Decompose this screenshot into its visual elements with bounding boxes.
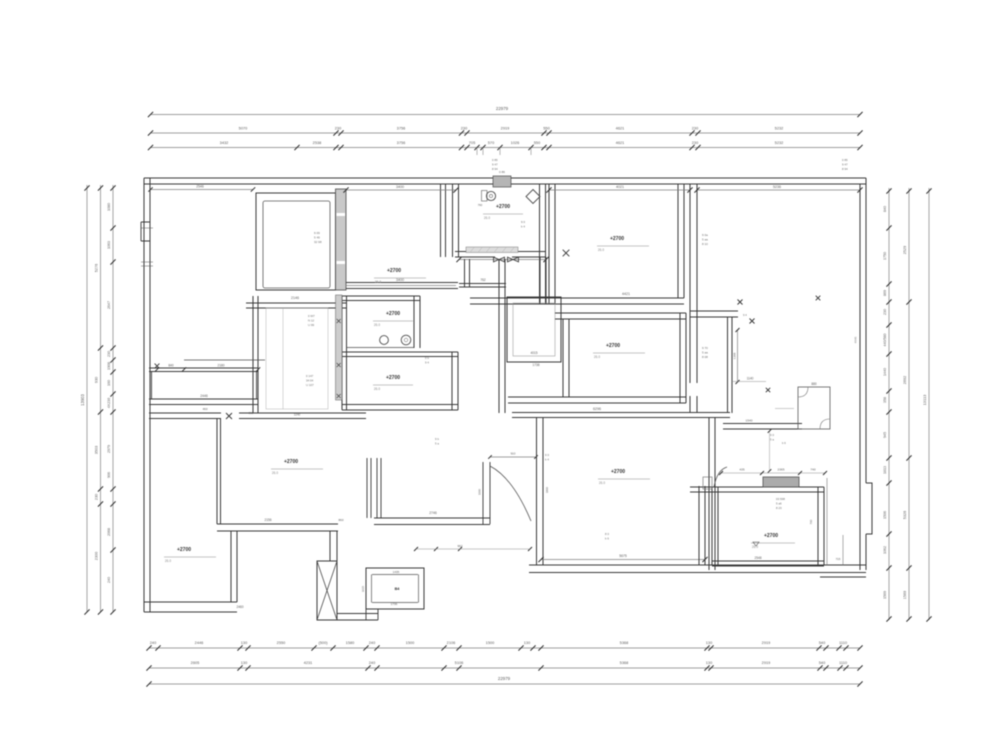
svg-text:840: 840	[883, 206, 887, 212]
svg-text:2546: 2546	[196, 185, 204, 189]
svg-text:130: 130	[524, 640, 531, 645]
svg-text:+2700: +2700	[177, 547, 191, 553]
svg-text:1062: 1062	[883, 546, 887, 554]
svg-text:9 0: 9 0	[770, 433, 774, 437]
svg-text:0 86: 0 86	[499, 170, 505, 174]
svg-text:3756: 3756	[397, 140, 406, 145]
svg-text:5 a: 5 a	[770, 438, 774, 442]
svg-text:570: 570	[488, 140, 495, 145]
svg-text:2529: 2529	[903, 246, 907, 254]
svg-text:740: 740	[810, 468, 815, 472]
svg-text:4421: 4421	[622, 292, 630, 296]
svg-text:+2700: +2700	[386, 375, 400, 381]
svg-text:2460: 2460	[236, 605, 243, 609]
svg-text:+2700: +2700	[387, 268, 401, 274]
svg-text:9 4: 9 4	[743, 313, 747, 317]
svg-text:906: 906	[107, 472, 111, 478]
svg-text:230: 230	[692, 140, 699, 145]
svg-text:460: 460	[202, 407, 207, 411]
svg-text:+2700: +2700	[496, 204, 510, 210]
svg-text:1738: 1738	[532, 363, 539, 367]
svg-text:8 94: 8 94	[492, 167, 498, 171]
svg-text:910: 910	[511, 452, 516, 456]
svg-text:4621: 4621	[616, 126, 625, 131]
svg-text:440/580: 440/580	[883, 334, 887, 347]
svg-text:230: 230	[692, 126, 699, 131]
svg-text:1750: 1750	[883, 252, 887, 260]
svg-text:13903: 13903	[80, 394, 85, 406]
svg-text:1500: 1500	[406, 640, 415, 645]
svg-text:230: 230	[461, 126, 468, 131]
svg-text:+2700: +2700	[764, 533, 778, 539]
svg-text:5232: 5232	[775, 140, 784, 145]
svg-text:435: 435	[739, 468, 744, 472]
svg-text:230: 230	[95, 494, 99, 500]
svg-text:5368: 5368	[620, 640, 629, 645]
svg-text:550: 550	[543, 126, 550, 131]
svg-text:540: 540	[819, 660, 826, 665]
svg-text:8 0: 8 0	[605, 532, 609, 536]
svg-text:+2700: +2700	[611, 469, 625, 475]
svg-text:+2700: +2700	[284, 459, 298, 465]
svg-text:880: 880	[811, 382, 817, 386]
svg-text:240: 240	[107, 577, 111, 583]
svg-text:6296: 6296	[593, 407, 601, 411]
svg-text:1500: 1500	[486, 640, 495, 645]
svg-text:860: 860	[338, 518, 343, 522]
svg-text:8 94: 8 94	[842, 167, 848, 171]
svg-text:9 47: 9 47	[842, 163, 848, 167]
svg-text:8 23: 8 23	[776, 506, 782, 510]
svg-text:2550: 2550	[277, 640, 286, 645]
svg-text:715: 715	[836, 557, 841, 561]
svg-text:32 98: 32 98	[314, 240, 322, 244]
svg-text:1736: 1736	[391, 602, 398, 606]
svg-text:869: 869	[883, 290, 887, 296]
svg-text:03 598: 03 598	[776, 497, 785, 501]
svg-text:945: 945	[883, 432, 887, 438]
svg-text:358: 358	[883, 397, 887, 403]
svg-text:1908: 1908	[107, 362, 111, 370]
svg-text:230: 230	[335, 126, 342, 131]
svg-text:b 6: b 6	[782, 441, 786, 445]
svg-text:U 99: U 99	[308, 323, 314, 327]
svg-text:4X230: 4X230	[107, 398, 111, 408]
svg-text:2647: 2647	[107, 301, 111, 309]
svg-text:550: 550	[534, 140, 541, 145]
svg-text:2300: 2300	[95, 552, 99, 560]
svg-text:26.0: 26.0	[752, 545, 758, 549]
svg-text:5 49: 5 49	[314, 236, 320, 240]
svg-text:760: 760	[809, 519, 813, 524]
svg-text:9 0: 9 0	[521, 220, 525, 224]
svg-text:705: 705	[469, 140, 476, 145]
svg-text:1063: 1063	[107, 241, 111, 249]
svg-text:5326: 5326	[903, 511, 907, 519]
svg-text:240: 240	[369, 660, 376, 665]
svg-text:160: 160	[107, 380, 111, 386]
svg-text:3400: 3400	[396, 185, 404, 189]
svg-text:3756: 3756	[397, 126, 406, 131]
svg-text:840: 840	[168, 364, 174, 368]
svg-text:5 a6: 5 a6	[776, 502, 782, 506]
svg-text:130: 130	[706, 640, 713, 645]
svg-text:2919: 2919	[762, 660, 771, 665]
svg-text:9 47: 9 47	[492, 163, 498, 167]
svg-text:5276: 5276	[95, 264, 99, 272]
svg-text:1110: 1110	[839, 660, 848, 665]
svg-text:2746: 2746	[429, 511, 437, 515]
svg-text:540: 540	[819, 640, 826, 645]
svg-text:1140: 1140	[747, 377, 754, 381]
svg-text:1569: 1569	[903, 591, 907, 599]
svg-text:2180: 2180	[217, 364, 224, 368]
svg-text:26.0: 26.0	[598, 248, 604, 252]
svg-text:4646: 4646	[854, 336, 858, 343]
svg-text:1860: 1860	[545, 486, 549, 493]
svg-text:0 W7: 0 W7	[308, 314, 315, 318]
svg-text:2919: 2919	[762, 640, 771, 645]
svg-text:N 12: N 12	[308, 319, 314, 323]
svg-text:1110: 1110	[839, 640, 848, 645]
svg-text:2548: 2548	[754, 556, 761, 560]
svg-text:1080: 1080	[107, 203, 111, 211]
svg-text:b 6: b 6	[605, 537, 609, 541]
svg-text:1615: 1615	[361, 585, 365, 592]
svg-text:8 08: 8 08	[702, 355, 708, 359]
svg-text:8 10: 8 10	[702, 242, 708, 246]
svg-text:34 04: 34 04	[306, 379, 314, 383]
svg-text:b 4: b 4	[521, 225, 525, 229]
svg-text:760: 760	[478, 203, 483, 207]
svg-text:3400: 3400	[396, 278, 404, 282]
svg-text:240: 240	[150, 640, 157, 645]
svg-text:2538: 2538	[313, 140, 322, 145]
svg-text:2106: 2106	[447, 640, 456, 645]
svg-text:26.0: 26.0	[165, 559, 171, 563]
svg-text:930: 930	[95, 377, 99, 383]
svg-text:230: 230	[883, 309, 887, 315]
svg-text:2365: 2365	[778, 468, 785, 472]
svg-text:26.0: 26.0	[599, 481, 605, 485]
svg-text:9 b: 9 b	[435, 437, 439, 441]
svg-text:2979: 2979	[107, 445, 111, 453]
svg-text:(500): (500)	[318, 640, 328, 645]
svg-text:4231: 4231	[304, 660, 313, 665]
svg-text:5106: 5106	[455, 660, 464, 665]
svg-text:5232: 5232	[775, 126, 784, 131]
svg-text:1540: 1540	[746, 419, 753, 423]
svg-text:2446: 2446	[195, 640, 204, 645]
svg-text:1813: 1813	[883, 466, 887, 474]
svg-text:9 0: 9 0	[545, 453, 549, 457]
svg-text:1026: 1026	[511, 140, 520, 145]
svg-text:9 09: 9 09	[314, 231, 320, 235]
svg-text:2919: 2919	[501, 126, 510, 131]
svg-text:1440: 1440	[883, 368, 887, 376]
svg-text:26.0: 26.0	[594, 355, 600, 359]
svg-text:2692: 2692	[903, 376, 907, 384]
svg-text:4021: 4021	[616, 185, 624, 189]
svg-text:860: 860	[249, 411, 254, 415]
svg-text:0 85: 0 85	[842, 158, 848, 162]
svg-text:22979: 22979	[496, 106, 509, 111]
svg-text:5368: 5368	[620, 660, 629, 665]
svg-text:1506: 1506	[883, 511, 887, 519]
svg-text:+2700: +2700	[606, 343, 620, 349]
svg-text:+2700: +2700	[386, 311, 400, 317]
svg-text:9 0a: 9 0a	[702, 233, 708, 237]
svg-text:130: 130	[241, 660, 248, 665]
svg-text:4621: 4621	[616, 140, 625, 145]
svg-text:b 4: b 4	[545, 458, 549, 462]
svg-text:2156: 2156	[264, 518, 271, 522]
svg-text:26.0: 26.0	[484, 216, 490, 220]
svg-text:5236: 5236	[773, 185, 781, 189]
svg-text:0 147: 0 147	[306, 374, 314, 378]
svg-text:5 aa: 5 aa	[702, 351, 708, 355]
svg-text:5070: 5070	[239, 126, 248, 131]
svg-text:26.0: 26.0	[375, 280, 381, 284]
svg-text:2605: 2605	[191, 660, 200, 665]
svg-text:230: 230	[107, 351, 111, 357]
svg-text:1569: 1569	[883, 591, 887, 599]
svg-text:0 85: 0 85	[492, 158, 498, 162]
svg-text:2446: 2446	[200, 394, 208, 398]
svg-text:762: 762	[480, 278, 486, 282]
svg-text:1368: 1368	[733, 352, 737, 359]
svg-text:0 b: 0 b	[425, 356, 429, 360]
svg-text:1580: 1580	[346, 640, 355, 645]
svg-text:130: 130	[241, 640, 248, 645]
svg-text:2146: 2146	[291, 296, 299, 300]
svg-text:26.0: 26.0	[374, 387, 380, 391]
svg-text:26.0: 26.0	[374, 323, 380, 327]
svg-text:5675: 5675	[619, 554, 627, 558]
svg-text:9 70: 9 70	[702, 346, 708, 350]
svg-text:130: 130	[706, 660, 713, 665]
svg-text:240: 240	[369, 640, 376, 645]
svg-text:2068: 2068	[107, 528, 111, 536]
svg-text:13113: 13113	[922, 394, 927, 406]
svg-text:9 4: 9 4	[425, 361, 429, 365]
svg-text:+2700: +2700	[610, 236, 624, 242]
svg-text:1000: 1000	[478, 488, 482, 495]
svg-text:3503: 3503	[95, 446, 99, 454]
svg-text:3432: 3432	[220, 140, 229, 145]
svg-text:5 a: 5 a	[435, 442, 439, 446]
svg-text:4015: 4015	[530, 351, 537, 355]
svg-text:1435: 1435	[393, 570, 400, 574]
svg-text:26.0: 26.0	[272, 471, 278, 475]
svg-text:1240: 1240	[294, 413, 301, 417]
svg-text:U 107: U 107	[306, 383, 314, 387]
svg-text:5 aa: 5 aa	[702, 238, 708, 242]
svg-text:22979: 22979	[498, 676, 511, 681]
